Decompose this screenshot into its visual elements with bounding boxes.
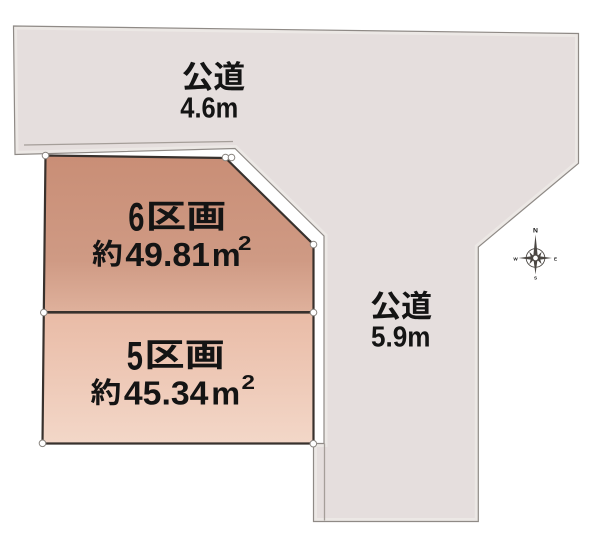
svg-text:m: m <box>211 375 240 411</box>
svg-text:2: 2 <box>238 232 252 255</box>
svg-text:6: 6 <box>128 196 144 240</box>
svg-text:49.81: 49.81 <box>125 237 209 274</box>
svg-text:W: W <box>513 256 518 261</box>
svg-text:5: 5 <box>127 334 143 378</box>
svg-text:45.34: 45.34 <box>124 375 209 412</box>
svg-text:m: m <box>212 237 241 273</box>
svg-text:E: E <box>554 256 557 261</box>
svg-text:5.9m: 5.9m <box>371 322 431 354</box>
svg-text:4.6m: 4.6m <box>180 93 238 125</box>
svg-text:2: 2 <box>242 371 256 394</box>
svg-text:S: S <box>534 276 537 281</box>
svg-text:N: N <box>533 228 538 235</box>
